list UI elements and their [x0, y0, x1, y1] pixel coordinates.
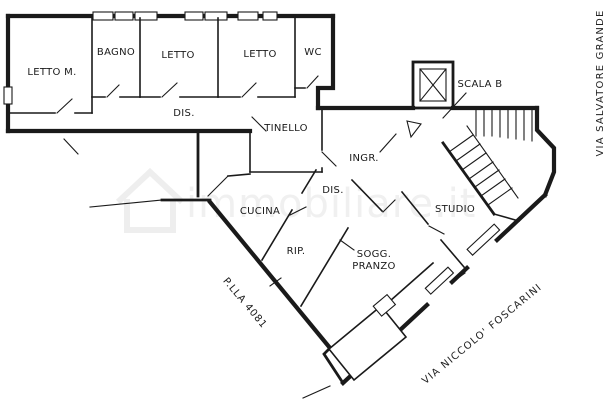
room-label-letto-2: LETTO	[243, 49, 276, 60]
room-label-dis-2: DIS.	[322, 185, 343, 196]
floorplan-canvas: immobiliare.it	[0, 0, 613, 403]
stair-direction-arrow-icon	[407, 121, 421, 137]
room-label-bagno: BAGNO	[97, 47, 135, 58]
room-label-sogg-line1: SOGG.	[357, 249, 391, 260]
street-label-salvatore-grande: VIA SALVATORE GRANDE	[595, 10, 606, 157]
room-label-cucina: CUCINA	[240, 206, 280, 217]
room-label-wc: WC	[304, 47, 321, 58]
room-label-ingr: INGR.	[349, 153, 378, 164]
street-label-foscarini: VIA NICCOLO' FOSCARINI	[420, 282, 544, 387]
balcony	[329, 295, 406, 380]
floorplan-page: immobiliare.it	[0, 0, 613, 403]
room-label-scala-b: SCALA B	[458, 79, 503, 90]
room-label-letto-1: LETTO	[161, 50, 194, 61]
room-label-dis-1: DIS.	[173, 108, 194, 119]
elevator-shaft	[413, 62, 453, 108]
room-label-studio: STUDIO	[435, 204, 475, 215]
stair-treads-upper	[476, 108, 532, 141]
room-label-rip: RIP.	[287, 246, 306, 257]
room-label-letto-m: LETTO M.	[27, 67, 76, 78]
room-label-tinello: TINELLO	[263, 123, 308, 134]
elevator-icon	[420, 69, 446, 101]
room-label-sogg-line2: PRANZO	[352, 261, 395, 272]
room-labels: LETTO M. BAGNO LETTO LETTO WC DIS. TINEL…	[27, 47, 502, 272]
parcel-label: P.LLA 4081	[220, 276, 269, 331]
